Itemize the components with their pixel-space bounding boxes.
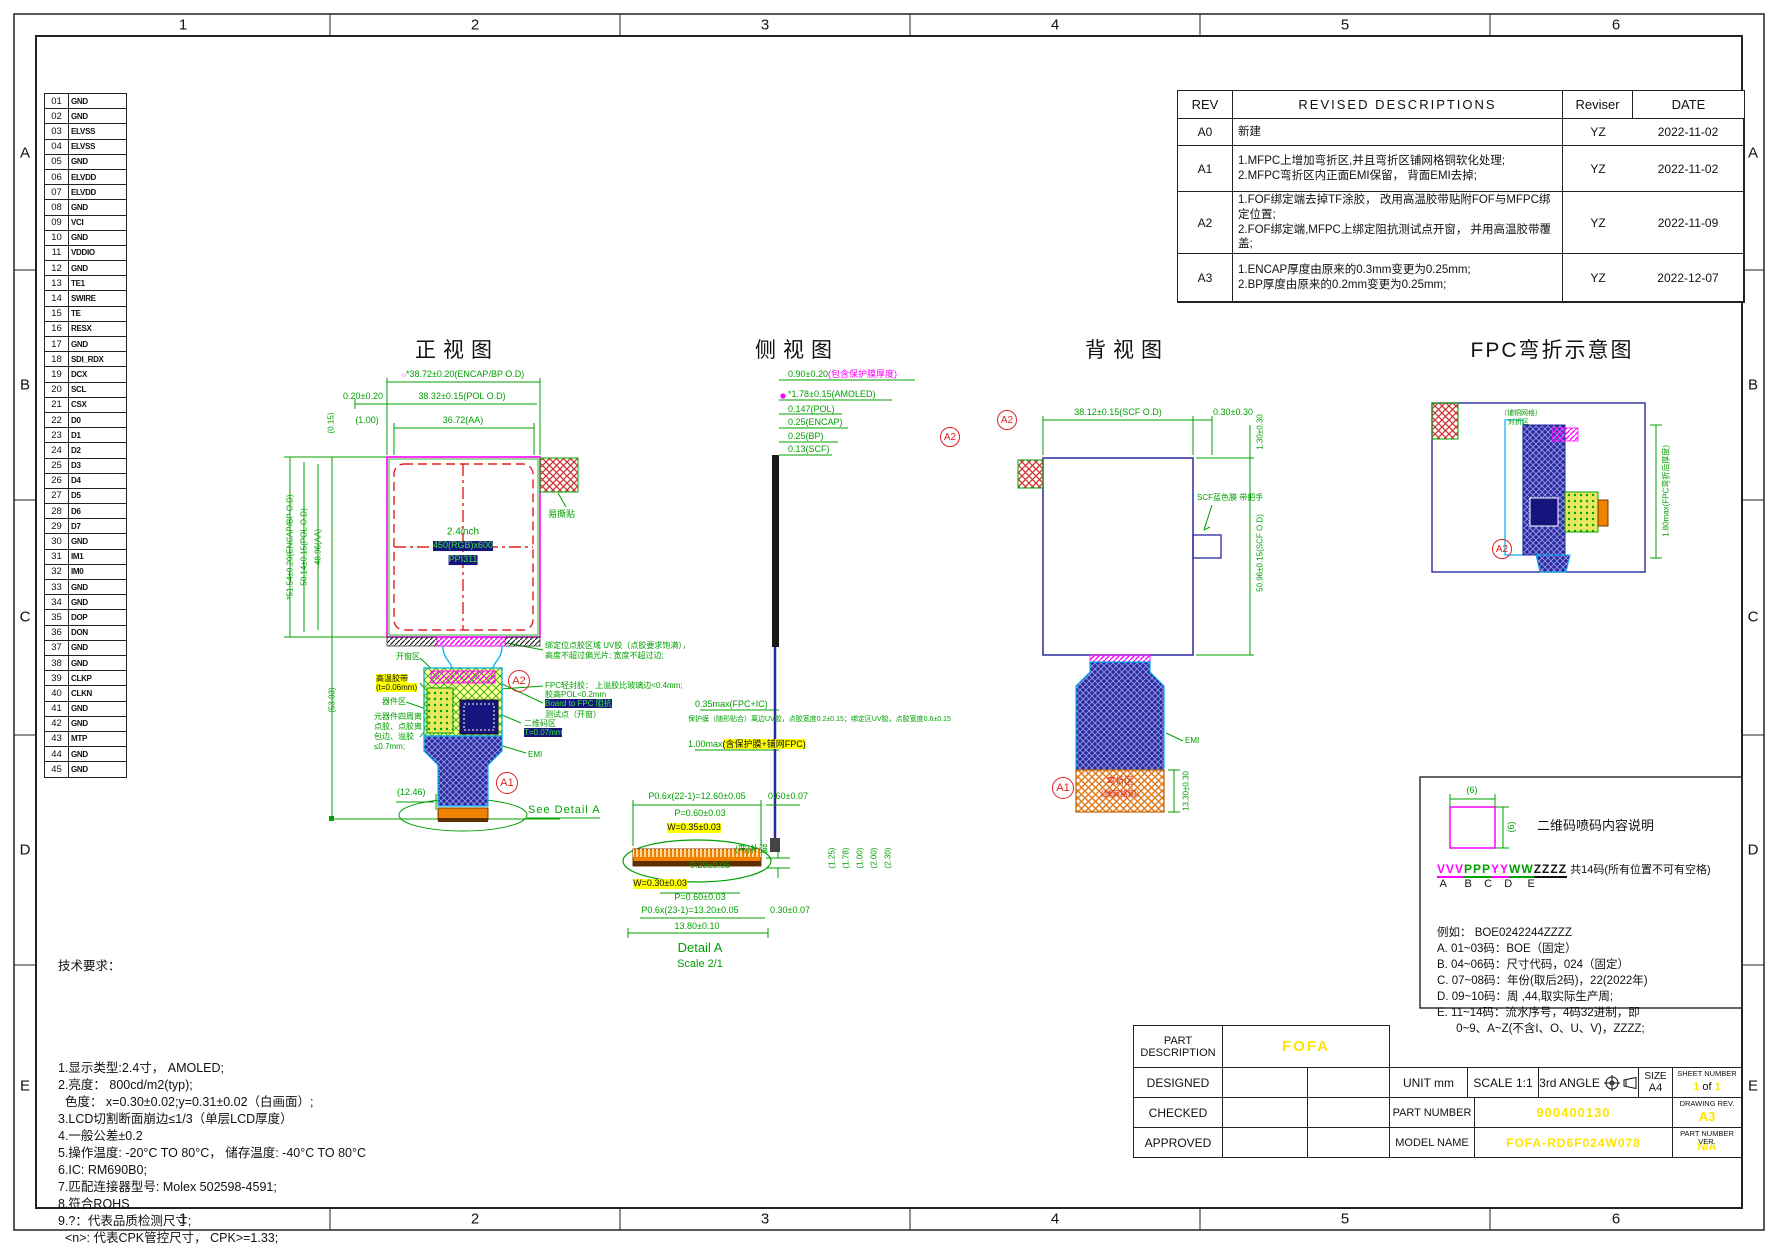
pin-name: GND (69, 261, 126, 275)
pin-row: 23 D1 (45, 428, 126, 443)
grid-row-label: A (1748, 145, 1758, 162)
grid-row-label: B (20, 377, 30, 394)
pin-row: 02 GND (45, 109, 126, 124)
note-line: 8.符合ROHS (58, 1196, 366, 1213)
qr-rule-line: 0~9、A~Z(不含I、O、U、V)，ZZZZ; (1437, 1021, 1648, 1037)
pin-number: 03 (45, 124, 69, 138)
rev-cell-reviser: YZ (1563, 192, 1633, 254)
dim-v-bp: *51.54±0.20(ENCAP/BP O.D) (286, 494, 295, 599)
rev-marker-a2: A2 (1492, 539, 1512, 559)
pin-number: 23 (45, 428, 69, 442)
pin-number: 35 (45, 610, 69, 624)
pin-row: 35 DOP (45, 610, 126, 625)
pin-name: ELVSS (69, 140, 126, 154)
code-suffix: 共14码(所有位置不可有空格) (1567, 864, 1711, 876)
grid-row-label: D (20, 842, 31, 859)
bend-view-title: FPC弯折示意图 (1471, 334, 1634, 364)
detail-side-dim: (2.00) (870, 848, 879, 869)
rev-cell-desc: 1.MFPC上增加弯折区,并且弯折区铺网格铜软化处理; 2.MFPC弯折区内正面… (1233, 146, 1563, 192)
pin-row: 27 D5 (45, 489, 126, 504)
bend-zone-label-2: （铺网格铜） (1096, 791, 1144, 800)
pin-name: GND (69, 580, 126, 594)
pin-row: 21 CSX (45, 398, 126, 413)
grid-col-label: 3 (761, 17, 769, 34)
qr-code-format: VVVPPPYYWWZZZZ 共14码(所有位置不可有空格) (1437, 860, 1711, 879)
pin-number: 18 (45, 352, 69, 366)
grid-row-label: D (1748, 842, 1759, 859)
ann-fold-area-2: 对折区 (1508, 419, 1529, 427)
pin-row: 01 GND (45, 94, 126, 109)
pin-name: GND (69, 656, 126, 670)
pin-number: 27 (45, 489, 69, 503)
rev-marker-a2: A2 (940, 427, 960, 447)
note-line: <n>: 代表CPK管控尺寸， CPK>=1.33; (58, 1230, 366, 1244)
rev-cell-date: 2022-12-07 (1633, 254, 1744, 302)
pin-name: GND (69, 747, 126, 761)
checked-value[interactable] (1222, 1097, 1308, 1128)
rev-cell-desc: 1.ENCAP厚度由原来的0.3mm变更为0.25mm; 2.BP厚度由原来的0… (1233, 254, 1563, 302)
front-view-title: 正视图 (415, 334, 499, 364)
pin-number: 28 (45, 504, 69, 518)
pin-number: 11 (45, 246, 69, 260)
sheet-current: 1 (1693, 1081, 1699, 1093)
detail-side-dim: (1.00) (856, 848, 865, 869)
dim-text: 1.00max (688, 739, 723, 749)
pin-row: 07 ELVDD (45, 185, 126, 200)
code-seg-v: VVV (1437, 862, 1464, 878)
dim-pol-offset: 0.20±0.20 (343, 392, 383, 402)
pin-row: 08 GND (45, 200, 126, 215)
pin-row: 29 D7 (45, 519, 126, 534)
pin-name: D4 (69, 474, 126, 488)
pin-row: 33 GND (45, 580, 126, 595)
detail-dim-end-2: 0.30±0.07 (770, 906, 810, 916)
pin-name: DOP (69, 610, 126, 624)
third-angle-icon (1604, 1075, 1638, 1091)
side-stack-2: 0.147(POL) (788, 404, 835, 415)
part-number-value: 900400130 (1474, 1097, 1673, 1128)
ann-stiffener: (弯)补强 (735, 844, 768, 855)
pin-name: SCL (69, 383, 126, 397)
pin-row: 43 MTP (45, 732, 126, 747)
grid-row-label: C (20, 609, 31, 626)
pin-row: 17 GND (45, 337, 126, 352)
dim-encap-od: ○*38.72±0.20(ENCAP/BP O.D) (402, 370, 525, 380)
ann-protect-film: 保护膜（随形贴合）离边UV胶，点胶宽度0.2±0.15；绑定区UV胶，点胶宽度0… (688, 716, 951, 724)
detail-dim-width-1: W=0.35±0.03 (667, 823, 721, 833)
pin-name: RESX (69, 322, 126, 336)
pin-number: 34 (45, 595, 69, 609)
dim-text: *38.72±0.20(ENCAP/BP O.D) (406, 369, 524, 379)
pin-number: 05 (45, 155, 69, 169)
rev-cell-desc: 1.FOF绑定端去掉TF涂胶， 改用高温胶带贴附FOF与MFPC绑定位置; 2.… (1233, 192, 1563, 254)
ann-component: 器件区 (382, 697, 406, 706)
rev-cell-rev: A3 (1178, 254, 1233, 302)
part-number-ver-label: PART NUMBER VER. (1673, 1130, 1741, 1145)
notes-lines: 1.显示类型:2.4寸， AMOLED;2.亮度： 800cd/m2(typ);… (58, 1009, 366, 1244)
sheet-of: of (1702, 1081, 1711, 1093)
rev-header-desc: REVISED DESCRIPTIONS (1233, 91, 1563, 119)
dim-scf-od: 38.12±0.15(SCF O.D) (1074, 408, 1161, 418)
pin-name: VDDIO (69, 246, 126, 260)
grid-row-label: A (20, 145, 30, 162)
projection-angle: 3rd ANGLE (1538, 1067, 1639, 1098)
note-line: 9.?：代表品质检测尺寸; (58, 1213, 366, 1230)
rev-marker-a2: A2 (997, 410, 1017, 430)
approved-label: APPROVED (1133, 1127, 1223, 1158)
pin-name: GND (69, 337, 126, 351)
pin-number: 22 (45, 413, 69, 427)
side-stack-4: 0.25(BP) (788, 431, 824, 442)
size-cell: SIZE A4 (1638, 1067, 1673, 1098)
rev-header-reviser: Reviser (1563, 91, 1633, 119)
grid-col-label: 4 (1051, 1211, 1059, 1228)
pin-row: 04 ELVSS (45, 140, 126, 155)
dim-text-note: (包含保护膜厚度) (828, 369, 897, 379)
pin-name: CLKN (69, 686, 126, 700)
pin-name: GND (69, 595, 126, 609)
code-seg-z: ZZZZ (1534, 862, 1567, 878)
pin-row: 12 GND (45, 261, 126, 276)
side-stack-3: 0.25(ENCAP) (788, 417, 843, 428)
pin-name: IM1 (69, 550, 126, 564)
grid-col-label: 4 (1051, 17, 1059, 34)
dim-aa-offset: (1.00) (355, 416, 379, 426)
grid-col-label: 6 (1612, 1211, 1620, 1228)
pin-row: 14 SWIRE (45, 291, 126, 306)
pin-row: 10 GND (45, 231, 126, 246)
pin-name: D6 (69, 504, 126, 518)
rev-cell-rev: A2 (1178, 192, 1233, 254)
dim-fpc-length: (12.46) (397, 787, 426, 798)
rev-marker-a1: A1 (1052, 777, 1074, 799)
pin-row: 32 IM0 (45, 565, 126, 580)
pin-name: D2 (69, 443, 126, 457)
pin-row: 26 D4 (45, 474, 126, 489)
detail-dim-pitch-total: P0.6x(22-1)=12.60±0.05 (648, 792, 745, 802)
grid-row-label: C (1748, 609, 1759, 626)
side-view-linework (695, 380, 915, 878)
note-line: 1.显示类型:2.4寸， AMOLED; (58, 1060, 366, 1077)
detail-dim-pitch-total-2: P0.6x(23-1)=13.20±0.05 (641, 906, 738, 916)
approved-date[interactable] (1307, 1127, 1390, 1158)
pin-name: CSX (69, 398, 126, 412)
pin-row: 06 ELVDD (45, 170, 126, 185)
rev-cell-date: 2022-11-09 (1633, 192, 1744, 254)
pin-row: 28 D6 (45, 504, 126, 519)
pin-name: D5 (69, 489, 126, 503)
pin-row: 36 DON (45, 626, 126, 641)
pin-name: ELVSS (69, 124, 126, 138)
checked-date[interactable] (1307, 1097, 1390, 1128)
pin-row: 19 DCX (45, 367, 126, 382)
grid-row-label: E (20, 1078, 30, 1095)
detail-dim-width-2: W=0.30±0.03 (633, 879, 687, 889)
note-line: 7.匹配连接器型号: Molex 502598-4591; (58, 1179, 366, 1196)
pin-number: 16 (45, 322, 69, 336)
size-value: A4 (1649, 1082, 1662, 1094)
side-stack-0: 0.90±0.20(包含保护膜厚度) (788, 369, 897, 380)
pin-number: 13 (45, 276, 69, 290)
detail-side-dim: (2.30) (884, 848, 893, 869)
rev-header-rev: REV (1178, 91, 1233, 119)
qr-code-letters: A B C D E (1437, 878, 1535, 891)
pin-name: GND (69, 762, 126, 777)
grid-row-label: E (1748, 1078, 1758, 1095)
rev-cell-rev: A1 (1178, 146, 1233, 192)
ann-fold-area: （铺铜网格） (1500, 410, 1542, 418)
detail-scale: Scale 2/1 (677, 958, 723, 970)
detail-side-dim: (1.78) (842, 848, 851, 869)
dim-aa: 36.72(AA) (443, 416, 484, 426)
designed-value[interactable] (1222, 1067, 1308, 1098)
pin-row: 11 VDDIO (45, 246, 126, 261)
side-stack-1: *1.78±0.15(AMOLED) (788, 389, 875, 400)
scale-label: SCALE 1:1 (1467, 1067, 1539, 1098)
pin-number: 04 (45, 140, 69, 154)
qr-box-title: 二维码喷码内容说明 (1537, 818, 1654, 833)
rev-cell-rev: A0 (1178, 119, 1233, 146)
pin-number: 44 (45, 747, 69, 761)
dim-stiffener: 0.29±0.05 (690, 860, 730, 871)
pin-row: 09 VCI (45, 216, 126, 231)
pin-number: 20 (45, 383, 69, 397)
unit-label: UNIT mm (1389, 1067, 1468, 1098)
bend-view-linework (1432, 403, 1662, 572)
detail-caption: Detail A (678, 941, 723, 955)
panel-size-label: 2.4inch (447, 527, 479, 538)
sheet-number-cell: SHEET NUMBER 1 of 1 (1672, 1067, 1742, 1098)
pin-row: 18 SDI_RDX (45, 352, 126, 367)
pin-row: 30 GND (45, 534, 126, 549)
checked-label: CHECKED (1133, 1097, 1223, 1128)
part-number-ver-cell: PART NUMBER VER. N/A (1672, 1127, 1742, 1158)
panel-resolution-label: 450(RGB)x600 (433, 541, 493, 551)
note-line: 5.操作温度: -20°C TO 80°C， 储存温度: -40°C TO 80… (58, 1145, 366, 1162)
ann-scf-handle: SCF蓝色膜 带把手 (1197, 493, 1263, 502)
pin-number: 07 (45, 185, 69, 199)
pin-number: 38 (45, 656, 69, 670)
pin-row: 16 RESX (45, 322, 126, 337)
see-detail-link: See Detail A (528, 804, 601, 817)
pin-name: GND (69, 94, 126, 108)
pin-row: 37 GND (45, 641, 126, 656)
ann-window: 开窗区 (396, 652, 420, 661)
code-seg-p: PPP (1464, 862, 1491, 878)
qr-square-height: (6) (1506, 822, 1516, 833)
pin-number: 33 (45, 580, 69, 594)
angle-label: 3rd ANGLE (1539, 1076, 1600, 1090)
pin-number: 25 (45, 459, 69, 473)
note-line: 6.IC: RM690B0; (58, 1162, 366, 1179)
pin-row: 34 GND (45, 595, 126, 610)
drawing-rev-value: A3 (1699, 1109, 1716, 1124)
qr-rule-line: A. 01~03码：BOE（固定） (1437, 941, 1648, 957)
pin-number: 36 (45, 626, 69, 640)
pin-row: 03 ELVSS (45, 124, 126, 139)
ann-tape-2: (t=0.06mm) (376, 683, 417, 692)
rev-cell-reviser: YZ (1563, 254, 1633, 302)
part-description-label: PART DESCRIPTION (1133, 1025, 1223, 1068)
ann-impedance: Board to FPC 阻抗 (545, 699, 612, 708)
rev-header-date: DATE (1633, 91, 1744, 119)
ann-uv-glue: 绑定位点胶区域 UV胶（点胶要求饱满），高度不超过偏光片; 宽度不超过边; (545, 641, 697, 661)
detail-dim-pitch-2: P=0.60±0.03 (674, 893, 725, 903)
dim-text-note: (含保护膜+铺网FPC) (723, 739, 806, 749)
pin-row: 24 D2 (45, 443, 126, 458)
engineering-drawing-sheet: 1 2 3 4 5 6 1 2 3 4 5 6 A B C D E A B C … (0, 0, 1778, 1244)
revision-table: REV REVISED DESCRIPTIONS Reviser DATE A0… (1177, 90, 1745, 303)
dim-v-aa: 48.96(AA) (314, 529, 323, 565)
drawing-rev-label: DRAWING REV. (1673, 1100, 1741, 1108)
pin-name: GND (69, 231, 126, 245)
pin-row: 45 GND (45, 762, 126, 777)
panel-ppi-label: PPI311 (449, 555, 478, 565)
qr-rule-line: C. 07~08码：年份(取后2码)，22(2022年) (1437, 973, 1648, 989)
pin-name: ELVDD (69, 170, 126, 184)
pin-row: 39 CLKP (45, 671, 126, 686)
qr-rule-line: D. 09~10码：周 ,44,取实际生产周; (1437, 989, 1648, 1005)
grid-row-label: B (1748, 377, 1758, 394)
pin-name: TE1 (69, 276, 126, 290)
pin-number: 29 (45, 519, 69, 533)
rev-marker-a2: A2 (508, 670, 530, 692)
side-stack-5: 0.13(SCF) (788, 444, 830, 455)
pin-number: 37 (45, 641, 69, 655)
pin-name: D1 (69, 428, 126, 442)
dim-text: 0.90±0.20 (788, 369, 828, 379)
front-view-linework (284, 378, 600, 831)
back-view-linework (1018, 416, 1254, 812)
drawing-rev-cell: DRAWING REV. A3 (1672, 1097, 1742, 1128)
approved-value[interactable] (1222, 1127, 1308, 1158)
part-description-value: FOFA (1222, 1025, 1390, 1068)
pin-number: 12 (45, 261, 69, 275)
grid-col-label: 5 (1341, 17, 1349, 34)
dim-pol-od: 38.32±0.15(POL O.D) (418, 392, 505, 402)
pin-number: 15 (45, 307, 69, 321)
pin-number: 19 (45, 367, 69, 381)
pin-number: 08 (45, 200, 69, 214)
dim-scf-offset: 0.30±0.30 (1213, 408, 1253, 418)
dim-fold-thickness: 1.80max(FPC弯折后厚度) (1661, 445, 1672, 537)
ann-component-glue: 元器件四周离点胶、点胶离包边、溢胶≤0.7mm; (374, 712, 422, 752)
pin-row: 05 GND (45, 155, 126, 170)
model-name-label: MODEL NAME (1389, 1127, 1475, 1158)
detail-side-dim: (1.25) (828, 848, 837, 869)
sheet-total: 1 (1715, 1081, 1721, 1093)
pin-number: 14 (45, 291, 69, 305)
model-name-value: FOFA-RD6F024W078 (1474, 1127, 1673, 1158)
detail-dim-pitch: P=0.60±0.03 (674, 809, 725, 819)
pin-number: 26 (45, 474, 69, 488)
pin-number: 30 (45, 534, 69, 548)
qr-code-rules: 例如： BOE0242244ZZZZA. 01~03码：BOE（固定）B. 04… (1437, 893, 1648, 1037)
pin-name: D0 (69, 413, 126, 427)
designed-label: DESIGNED (1133, 1067, 1223, 1098)
pin-number: 17 (45, 337, 69, 351)
qr-square-width: (6) (1467, 786, 1478, 796)
pin-row: 40 CLKN (45, 686, 126, 701)
rev-cell-date: 2022-11-02 (1633, 146, 1744, 192)
pin-name: IM0 (69, 565, 126, 579)
pin-name: DON (69, 626, 126, 640)
pin-row: 42 GND (45, 717, 126, 732)
note-line: 2.亮度： 800cd/m2(typ); (58, 1077, 366, 1094)
designed-date[interactable] (1307, 1067, 1390, 1098)
part-number-label: PART NUMBER (1389, 1097, 1475, 1128)
grid-col-label: 2 (471, 17, 479, 34)
pin-number: 06 (45, 170, 69, 184)
rev-cell-reviser: YZ (1563, 119, 1633, 146)
grid-col-label: 3 (761, 1211, 769, 1228)
pin-name: D7 (69, 519, 126, 533)
pin-number: 02 (45, 109, 69, 123)
pin-row: 38 GND (45, 656, 126, 671)
pin-row: 41 GND (45, 702, 126, 717)
pin-row: 20 SCL (45, 383, 126, 398)
pin-number: 39 (45, 671, 69, 685)
pin-name: ELVDD (69, 185, 126, 199)
pin-number: 32 (45, 565, 69, 579)
pin-name: GND (69, 717, 126, 731)
rev-cell-desc: 新建 (1233, 119, 1563, 146)
pin-name: GND (69, 200, 126, 214)
pin-number: 21 (45, 398, 69, 412)
pin-name: GND (69, 155, 126, 169)
qr-rule-line: 例如： BOE0242244ZZZZ (1437, 925, 1648, 941)
detail-dim-total: 13.80±0.10 (675, 922, 720, 932)
code-seg-w: WW (1509, 862, 1534, 878)
pin-name: SWIRE (69, 291, 126, 305)
pin-number: 24 (45, 443, 69, 457)
grid-col-label: 5 (1341, 1211, 1349, 1228)
qr-rule-line: B. 04~06码：尺寸代码，024（固定） (1437, 957, 1648, 973)
pin-name: GND (69, 109, 126, 123)
rev-marker-a1: A1 (496, 772, 518, 794)
sheet-number-label: SHEET NUMBER (1673, 1070, 1741, 1078)
dim-bend-length: 13.30±0.30 (1182, 771, 1191, 811)
pin-number: 43 (45, 732, 69, 746)
ann-qr-area-2: T=0.07mm (524, 728, 562, 737)
note-line: 3.LCD切割断面崩边≤1/3（单层LCD厚度） (58, 1111, 366, 1128)
dim-topleft: (0.15) (327, 413, 336, 434)
pin-number: 41 (45, 702, 69, 716)
pin-number: 31 (45, 550, 69, 564)
pin-name: TE (69, 307, 126, 321)
dim-v-scf: 50.96±0.15(SCF O.D) (1256, 514, 1265, 592)
pin-row: 22 D0 (45, 413, 126, 428)
size-label: SIZE (1644, 1071, 1666, 1082)
pin-name: CLKP (69, 671, 126, 685)
note-line: 4.一般公差±0.2 (58, 1128, 366, 1145)
dim-bend-thickness: 1.00max(含保护膜+铺网FPC) (688, 739, 806, 750)
side-view-title: 侧视图 (755, 334, 839, 364)
detail-dim-end: 0.60±0.07 (768, 792, 808, 802)
ann-emi: EMI (528, 750, 542, 759)
back-view-title: 背视图 (1085, 334, 1169, 364)
code-seg-y: YY (1491, 862, 1509, 878)
qr-rule-line: E. 11~14码：流水序号，4码32进制，即 (1437, 1005, 1648, 1021)
pin-row: 44 GND (45, 747, 126, 762)
pin-name: SDI_RDX (69, 352, 126, 366)
dim-fpc-ic: 0.35max(FPC+IC) (695, 699, 768, 710)
grid-col-label: 1 (179, 17, 187, 34)
rev-cell-date: 2022-11-02 (1633, 119, 1744, 146)
sheet-number-value: 1 of 1 (1693, 1081, 1721, 1093)
ann-sticker: 易撕贴 (548, 509, 575, 520)
pin-number: 40 (45, 686, 69, 700)
